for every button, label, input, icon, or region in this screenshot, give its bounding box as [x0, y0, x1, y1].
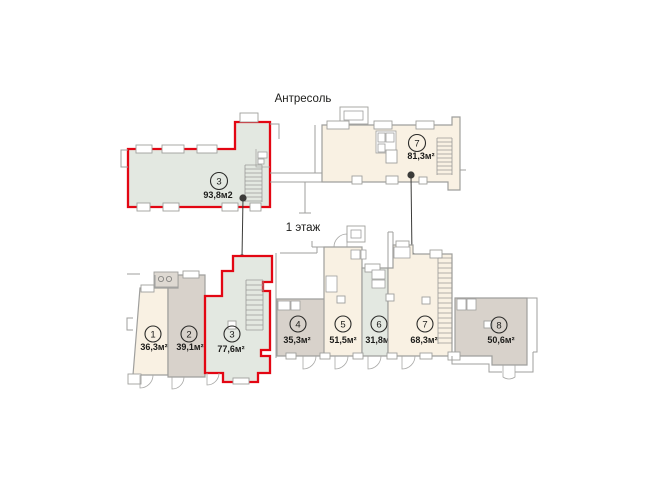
door-arc	[503, 365, 509, 379]
balcony-inner	[351, 230, 361, 238]
door-arc	[402, 356, 415, 369]
link-dot	[239, 194, 246, 201]
window	[183, 271, 199, 278]
unit-number: 3	[229, 330, 234, 341]
bay-window	[128, 374, 141, 384]
door-arc	[303, 356, 316, 369]
mezzanine-plan: Антресоль	[121, 93, 466, 213]
first-floor-plan: 1 этаж 1 36,3м² 2 39,1м²	[127, 222, 537, 389]
unit-number: 3	[216, 177, 221, 188]
fixtures	[278, 301, 300, 310]
door-arc	[335, 356, 348, 369]
unit-number: 6	[376, 320, 381, 331]
door-arc	[172, 377, 184, 389]
windows	[327, 121, 434, 129]
unit-4: 4 35,3м²	[277, 299, 325, 356]
unit-area: 35,3м²	[283, 335, 310, 345]
unit-3-shape[interactable]	[205, 256, 272, 382]
fixture	[258, 152, 267, 158]
window	[141, 285, 154, 292]
unit-number: 5	[340, 320, 345, 331]
unit-number: 2	[186, 330, 191, 341]
unit-number: 7	[414, 139, 419, 150]
fixtures	[372, 270, 385, 288]
unit-area: 68,3м²	[410, 335, 437, 345]
column-marker	[337, 296, 345, 303]
link-dot	[407, 171, 414, 178]
door-arc	[334, 234, 347, 247]
shaft-walls	[388, 232, 393, 268]
mezzanine-unit-7: 7 81,3м²	[322, 107, 466, 190]
floor-plan-drawing: Антресоль	[0, 0, 653, 489]
unit-1: 1 36,3м²	[133, 285, 168, 375]
mezzanine-corridor-walls	[270, 125, 322, 213]
unit-number: 7	[422, 320, 427, 331]
fixture	[394, 247, 410, 258]
fixture	[258, 159, 264, 164]
unit-number: 8	[496, 321, 501, 332]
first-floor-title: 1 этаж	[286, 222, 321, 234]
unit-area: 39,1м²	[176, 342, 203, 352]
mezzanine-unit-3: 3 93,8м2	[121, 113, 279, 211]
unit-area: 50,6м²	[487, 335, 514, 345]
unit-8: 8 50,6м²	[455, 298, 527, 365]
unit-area: 51,5м²	[329, 335, 356, 345]
balcony-inner	[344, 111, 363, 120]
leader-line-unit-7	[411, 175, 412, 256]
unit-3: 3 77,6м²	[205, 256, 272, 384]
mezzanine-title: Антресоль	[275, 93, 332, 105]
unit-5: 5 51,5м²	[324, 247, 366, 356]
unit-area: 93,8м2	[203, 190, 232, 200]
door-arc	[140, 375, 153, 388]
unit-number: 1	[150, 330, 155, 341]
window	[233, 378, 249, 384]
unit-area: 81,3м²	[407, 151, 434, 161]
stove-fixture	[154, 272, 178, 287]
door-arc	[509, 365, 515, 379]
unit-area: 77,6м²	[217, 344, 244, 354]
unit-7: 7 68,3м²	[386, 241, 452, 356]
column-marker	[386, 294, 394, 301]
wall-line	[270, 124, 279, 139]
column-marker	[228, 321, 236, 329]
unit-number: 4	[295, 320, 300, 331]
mezzanine-unit-3-shape[interactable]	[128, 122, 270, 207]
door-arc	[368, 356, 381, 369]
floor-plan-page: Антресоль	[0, 0, 653, 489]
column-marker	[422, 297, 430, 304]
unit-area: 36,3м²	[140, 342, 167, 352]
door-arc	[207, 373, 219, 385]
